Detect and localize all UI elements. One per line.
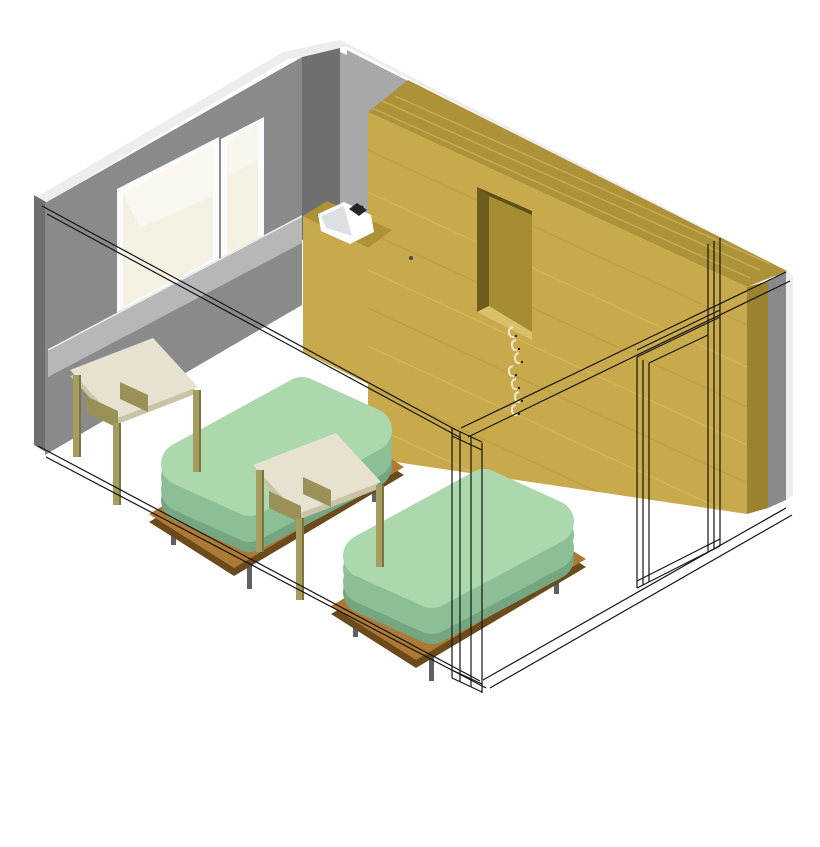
left-wall-end-cap [34,195,46,452]
right-wall-edge-strip [786,272,793,500]
back-wall-left-block [340,52,372,228]
wardrobe-end-face [747,281,768,514]
room-3d-canvas [0,0,820,847]
room-3d-view [0,0,820,847]
wardrobe-knob [409,256,413,260]
niche-side-face [477,187,489,312]
faucet-handle [361,206,364,209]
right-wall-face [768,272,786,508]
